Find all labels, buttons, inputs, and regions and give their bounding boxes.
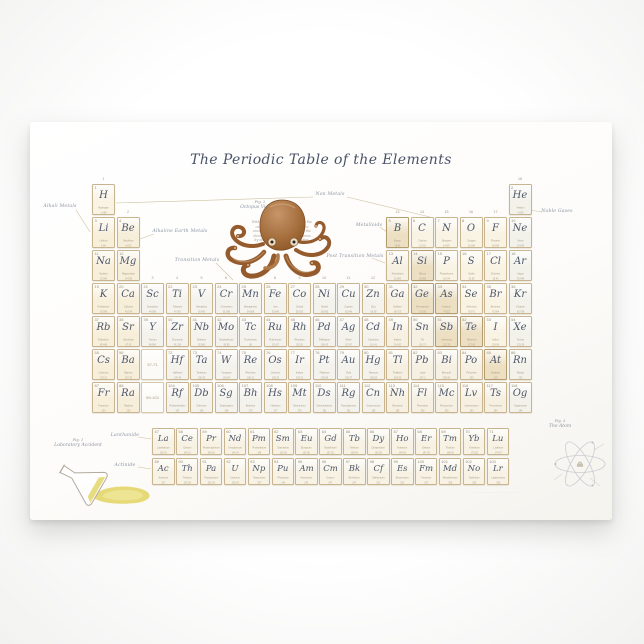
periodic-table-poster: The Periodic Table of the Elements 1HHyd… (30, 122, 612, 520)
element-cell-Pu: 94PuPlutonium244 (272, 458, 295, 485)
element-cell-Cs: 55CsCaesium132.91 (92, 349, 115, 380)
atomic-number: 79 (340, 351, 344, 355)
element-cell-Bk: 97BkBerkelium247 (343, 458, 366, 485)
element-symbol: Be (118, 223, 139, 235)
atomic-mass: 101.07 (266, 344, 283, 346)
element-symbol: Og (510, 388, 531, 400)
atomic-mass: 78.971 (462, 311, 479, 313)
element-symbol: V (191, 289, 212, 301)
atomic-number: 32 (413, 285, 417, 289)
atomic-mass: 266 (489, 481, 506, 483)
element-name: Germanium (413, 305, 432, 308)
element-symbol: Am (296, 463, 317, 475)
element-name: Gold (339, 371, 358, 374)
octopus-head (260, 200, 305, 250)
element-name: Mendelevium (441, 476, 460, 479)
atomic-mass: 69.723 (389, 311, 406, 313)
element-symbol: Cn (363, 388, 384, 400)
element-symbol: K (93, 289, 114, 301)
element-cell-Bi: 83BiBismuth208.98 (435, 349, 458, 380)
element-cell-Pb: 82PbLead207.2 (411, 349, 434, 380)
atomic-number: 112 (364, 384, 370, 388)
element-symbol: Np (249, 463, 270, 475)
atomic-mass: 289 (413, 410, 430, 412)
atomic-mass: 140.12 (179, 451, 196, 453)
element-cell-Rg: 111RgRoentgenium282 (337, 382, 360, 413)
atomic-mass: 39.948 (511, 278, 528, 280)
element-symbol: Pr (201, 433, 222, 445)
atomic-mass: 180.95 (193, 377, 210, 379)
element-cell-Hg: 80HgMercury200.59 (362, 349, 385, 380)
element-symbol: Ti (167, 289, 188, 301)
element-name: Iridium (290, 371, 309, 374)
element-name: Thallium (388, 371, 407, 374)
atomic-number: 20 (119, 285, 123, 289)
element-cell-Os: 76OsOsmium190.23 (264, 349, 287, 380)
atomic-mass: 258 (442, 481, 459, 483)
element-name: Cobalt (290, 305, 309, 308)
element-name: Cerium (178, 446, 197, 449)
atomic-mass: 98 (242, 344, 259, 346)
element-symbol: Zn (363, 289, 384, 301)
element-name: Platinum (315, 371, 334, 374)
atomic-mass: 40.078 (119, 311, 136, 313)
element-cell-Mo: 42MoMolybdenum95.95 (215, 316, 238, 347)
element-symbol: Fl (412, 388, 433, 400)
fig1-label: Fig. 1 Laboratory Accident (54, 438, 102, 448)
atomic-mass: 145 (250, 451, 267, 453)
element-symbol: Ru (265, 322, 286, 334)
atomic-number: 22 (168, 285, 172, 289)
atomic-mass: 112.41 (364, 344, 381, 346)
atomic-mass: 79.904 (487, 311, 504, 313)
atomic-mass: 252 (394, 481, 411, 483)
atomic-mass: 209 (462, 377, 479, 379)
atomic-mass: 58.933 (291, 311, 308, 313)
element-name: Francium (94, 404, 113, 407)
element-name: Nobelium (465, 476, 484, 479)
atomic-mass: 87.62 (119, 344, 136, 346)
element-symbol: Mn (240, 289, 261, 301)
element-cell-Lr: 103LrLawrencium266 (487, 458, 510, 485)
atomic-number: 46 (315, 318, 319, 322)
element-name: Ytterbium (465, 446, 484, 449)
annotation-non-metals: Non Metals (315, 192, 344, 197)
element-cell-Lu: 71LuLutetium174.97 (487, 428, 510, 455)
element-name: Tungsten (217, 371, 236, 374)
element-symbol: Cl (485, 256, 506, 268)
element-symbol: Sc (142, 289, 163, 301)
element-cell-Ni: 28NiNickel58.693 (313, 283, 336, 314)
element-name: Tantalum (192, 371, 211, 374)
element-symbol: Rg (338, 388, 359, 400)
element-name: Potassium (94, 305, 113, 308)
element-name: Moscovium (437, 404, 456, 407)
atomic-mass: 285 (364, 410, 381, 412)
atomic-number: 7 (438, 219, 440, 223)
element-symbol: As (436, 289, 457, 301)
atomic-mass: 132.91 (95, 377, 112, 379)
element-name: Darmstadtium (315, 404, 334, 407)
atomic-mass: 173.05 (465, 451, 482, 453)
atomic-mass: 208.98 (438, 377, 455, 379)
element-cell-Ar: 18ArArgon39.948 (509, 250, 532, 281)
element-cell-Sr: 38SrStrontium87.62 (117, 316, 140, 347)
element-symbol: Kr (510, 289, 531, 301)
atomic-number: 2 (511, 186, 513, 190)
atomic-mass: 167.26 (418, 451, 435, 453)
nucleus (577, 462, 583, 467)
element-cell-Nd: 60NdNeodymium144.24 (224, 428, 247, 455)
element-symbol: Au (338, 355, 359, 367)
element-symbol: Bh (240, 388, 261, 400)
atomic-mass: 55.845 (266, 311, 283, 313)
element-symbol: La (153, 433, 174, 445)
element-cell-Hs: 108HsHassium277 (264, 382, 287, 413)
element-symbol: At (485, 355, 506, 367)
atomic-mass: 58.693 (315, 311, 332, 313)
atomic-mass: 286 (389, 410, 406, 412)
element-symbol: Ra (118, 388, 139, 400)
atomic-mass: 4.003 (511, 212, 528, 214)
element-cell-K: 19KPotassium39.098 (92, 283, 115, 314)
element-cell-Cf: 98CfCalifornium251 (367, 458, 390, 485)
element-name: Rhodium (290, 338, 309, 341)
atomic-mass: 150.36 (274, 451, 291, 453)
atomic-number: 50 (413, 318, 417, 322)
element-symbol: Zr (167, 322, 188, 334)
element-cell-B: 5BBoron10.81 (386, 217, 409, 248)
element-name: Antimony (437, 338, 456, 341)
element-name: Strontium (119, 338, 138, 341)
element-cell-Pr: 59PrPraseodymium140.91 (200, 428, 223, 455)
atomic-number: 109 (291, 384, 298, 388)
element-symbol: Pu (273, 463, 294, 475)
element-name: Magnesium (119, 272, 138, 275)
element-name: Barium (119, 371, 138, 374)
atomic-number: 84 (462, 351, 466, 355)
element-symbol: Lr (488, 463, 509, 475)
atomic-mass: 50.942 (193, 311, 210, 313)
atomic-mass: 140.91 (203, 451, 220, 453)
element-cell-Sc: 21ScScandium44.956 (141, 283, 164, 314)
element-cell-Fr: 87FrFrancium223 (92, 382, 115, 413)
atomic-mass: 137.33 (119, 377, 136, 379)
atomic-mass: 269 (217, 410, 234, 412)
element-symbol: Ds (314, 388, 335, 400)
element-symbol: In (387, 322, 408, 334)
atomic-mass: 192.22 (291, 377, 308, 379)
element-cell-No: 102NoNobelium259 (463, 458, 486, 485)
atomic-number: 42 (217, 318, 221, 322)
group-number-17: 17 (484, 210, 507, 214)
element-symbol: Rf (167, 388, 188, 400)
element-symbol: Ni (314, 289, 335, 301)
element-symbol: Sn (412, 322, 433, 334)
element-symbol: Gd (320, 433, 341, 445)
fig1-caption: Laboratory Accident (54, 443, 102, 449)
element-name: Cadmium (364, 338, 383, 341)
atomic-mass: 107.87 (340, 344, 357, 346)
atomic-mass: 72.630 (413, 311, 430, 313)
element-name: Mercury (364, 371, 383, 374)
atomic-number: 72 (168, 351, 172, 355)
atomic-mass: 204.38 (389, 377, 406, 379)
element-symbol: Tl (387, 355, 408, 367)
element-cell-Xe: 54XeXenon131.29 (509, 316, 532, 347)
element-name: Tin (413, 338, 432, 341)
spilled-flask-illustration (48, 450, 158, 510)
element-cell-Ge: 32GeGermanium72.630 (411, 283, 434, 314)
placeholder-range: 57-71 (142, 362, 163, 367)
element-cell-Po: 84PoPolonium209 (460, 349, 483, 380)
element-name: Phosphorus (437, 272, 456, 275)
atomic-mass: 158.93 (346, 451, 363, 453)
atomic-mass: 251 (370, 481, 387, 483)
atomic-number: 41 (193, 318, 197, 322)
atomic-number: 76 (266, 351, 270, 355)
atomic-mass: 12.011 (413, 245, 430, 247)
atomic-mass: 293 (462, 410, 479, 412)
element-symbol: Hf (167, 355, 188, 367)
atomic-number: 77 (291, 351, 295, 355)
element-name: Argon (511, 272, 530, 275)
element-name: Lawrencium (488, 476, 507, 479)
element-cell-Am: 95AmAmericium243 (295, 458, 318, 485)
element-symbol: Pt (314, 355, 335, 367)
element-symbol: O (461, 223, 482, 235)
atomic-mass: 247 (322, 481, 339, 483)
element-cell-H: 1HHydrogen1.008 (92, 184, 115, 215)
atomic-number: 14 (413, 252, 417, 256)
element-cell-Te: 52TeTellurium127.60 (460, 316, 483, 347)
element-symbol: Pb (412, 355, 433, 367)
element-cell-At: 85AtAstatine210 (484, 349, 507, 380)
element-symbol: Ta (191, 355, 212, 367)
atomic-mass: 259 (465, 481, 482, 483)
atomic-mass: 51.996 (217, 311, 234, 313)
element-cell-Cm: 96CmCurium247 (319, 458, 342, 485)
element-symbol: Tc (240, 322, 261, 334)
element-symbol: Po (461, 355, 482, 367)
element-cell-Cn: 112CnCopernicium285 (362, 382, 385, 413)
element-cell-Sg: 106SgSeaborgium269 (215, 382, 238, 413)
element-cell-Br: 35BrBromine79.904 (484, 283, 507, 314)
element-cell-Zr: 40ZrZirconium91.224 (166, 316, 189, 347)
element-name: Scandium (143, 305, 162, 308)
element-cell-Tm: 69TmThulium168.93 (439, 428, 462, 455)
atomic-number: 10 (511, 219, 515, 223)
atomic-mass: 144.24 (226, 451, 243, 453)
atomic-mass: 200.59 (364, 377, 381, 379)
atomic-number: 73 (193, 351, 197, 355)
element-symbol: S (461, 256, 482, 268)
element-symbol: Na (93, 256, 114, 268)
atomic-mass: 47.867 (168, 311, 185, 313)
atomic-mass: 26.982 (389, 278, 406, 280)
atomic-number: 83 (438, 351, 442, 355)
atomic-mass: 54.938 (242, 311, 259, 313)
element-name: Yttrium (143, 338, 162, 341)
element-symbol: Fe (265, 289, 286, 301)
element-symbol: Mt (289, 388, 310, 400)
atomic-mass: 294 (487, 410, 504, 412)
atomic-mass: 281 (315, 410, 332, 412)
element-name: Boron (388, 239, 407, 242)
atomic-mass: 222 (511, 377, 528, 379)
element-cell-Fl: 114FlFlerovium289 (411, 382, 434, 413)
atomic-number: 30 (364, 285, 368, 289)
atomic-mass: 183.84 (217, 377, 234, 379)
element-cell-Mg: 12MgMagnesium24.305 (117, 250, 140, 281)
element-cell-Sm: 62SmSamarium150.36 (272, 428, 295, 455)
group-number-16: 16 (460, 210, 483, 214)
atomic-number: 117 (487, 384, 493, 388)
element-cell-Al: 13AlAluminium26.982 (386, 250, 409, 281)
group-number-1: 1 (92, 177, 115, 181)
element-cell-Gd: 64GdGadolinium157.25 (319, 428, 342, 455)
element-name: Copper (339, 305, 358, 308)
atomic-number: 111 (340, 384, 346, 388)
element-cell-Be: 4BeBeryllium9.012 (117, 217, 140, 248)
element-cell-Mc: 115McMoscovium290 (435, 382, 458, 413)
element-symbol: Fr (93, 388, 114, 400)
atomic-number: 8 (462, 219, 464, 223)
element-name: Carbon (413, 239, 432, 242)
atomic-mass: 106.42 (315, 344, 332, 346)
element-cell-Sb: 51SbAntimony121.76 (435, 316, 458, 347)
octopus-illustration (216, 198, 346, 286)
element-name: Xenon (511, 338, 530, 341)
atomic-mass: 91.224 (168, 344, 185, 346)
element-symbol: Nh (387, 388, 408, 400)
element-symbol: Es (392, 463, 413, 475)
element-cell-P: 15PPhosphorus30.974 (435, 250, 458, 281)
element-cell-Re: 75ReRhenium186.21 (239, 349, 262, 380)
element-symbol: Rn (510, 355, 531, 367)
element-cell-Ds: 110DsDarmstadtium281 (313, 382, 336, 413)
element-cell-Sn: 50SnTin118.71 (411, 316, 434, 347)
element-name: Bromine (486, 305, 505, 308)
atomic-mass: 118.71 (413, 344, 430, 346)
atomic-mass: 232.04 (179, 481, 196, 483)
element-name: Neptunium (249, 476, 268, 479)
atomic-number: 11 (95, 252, 99, 256)
element-cell-U: 92UUranium238.03 (224, 458, 247, 485)
element-name: Berkelium (345, 476, 364, 479)
element-symbol: Y (142, 322, 163, 334)
element-name: Chromium (217, 305, 236, 308)
element-name: Lanthanum (154, 446, 173, 449)
atomic-number: 31 (389, 285, 393, 289)
element-name: Praseodymium (202, 446, 221, 449)
atomic-number: 88 (119, 384, 123, 388)
element-symbol: B (387, 223, 408, 235)
atomic-number: 51 (438, 318, 442, 322)
atomic-number: 49 (389, 318, 393, 322)
element-symbol: Bk (344, 463, 365, 475)
element-cell-Tc: 43TcTechnetium98 (239, 316, 262, 347)
atomic-number: 23 (193, 285, 197, 289)
element-cell-Au: 79AuGold196.97 (337, 349, 360, 380)
atomic-number: 43 (242, 318, 246, 322)
element-symbol: F (485, 223, 506, 235)
element-cell-Li: 3LiLithium6.94 (92, 217, 115, 248)
element-cell-O: 8OOxygen15.999 (460, 217, 483, 248)
element-name: Iodine (486, 338, 505, 341)
atomic-number: 13 (389, 252, 393, 256)
element-name: Europium (297, 446, 316, 449)
atomic-mass: 121.76 (438, 344, 455, 346)
element-name: Indium (388, 338, 407, 341)
element-cell-Co: 27CoCobalt58.933 (288, 283, 311, 314)
element-name: Curium (321, 476, 340, 479)
atomic-mass: 44.956 (144, 311, 161, 313)
element-cell-Ce: 58CeCerium140.12 (176, 428, 199, 455)
element-cell-Tl: 81TlThallium204.38 (386, 349, 409, 380)
element-cell-Md: 101MdMendelevium258 (439, 458, 462, 485)
atomic-number: 85 (487, 351, 491, 355)
element-cell-Db: 105DbDubnium268 (190, 382, 213, 413)
atomic-mass: 151.96 (298, 451, 315, 453)
element-symbol: Ne (510, 223, 531, 235)
atomic-number: 104 (168, 384, 175, 388)
atomic-number: 82 (413, 351, 417, 355)
atomic-mass: 186.21 (242, 377, 259, 379)
element-symbol: Mg (118, 256, 139, 268)
element-name: Beryllium (119, 239, 138, 242)
element-name: Hydrogen (94, 206, 113, 209)
atomic-mass: 114.82 (389, 344, 406, 346)
atomic-mass: 15.999 (462, 245, 479, 247)
atomic-number: 16 (462, 252, 466, 256)
atomic-number: 52 (462, 318, 466, 322)
element-symbol: Cr (216, 289, 237, 301)
element-name: Dubnium (192, 404, 211, 407)
atomic-mass: 20.180 (511, 245, 528, 247)
atomic-mass: 24.305 (119, 278, 136, 280)
atomic-mass: 267 (168, 410, 185, 412)
element-symbol: Hs (265, 388, 286, 400)
atomic-mass: 277 (266, 410, 283, 412)
element-name: Neon (511, 239, 530, 242)
atomic-mass: 190.23 (266, 377, 283, 379)
element-symbol: Fm (416, 463, 437, 475)
atomic-number: 17 (487, 252, 491, 256)
atomic-number: 15 (438, 252, 442, 256)
element-name: Nickel (315, 305, 334, 308)
element-cell-Yb: 70YbYtterbium173.05 (463, 428, 486, 455)
element-cell-Er: 68ErErbium167.26 (415, 428, 438, 455)
atomic-mass: 18.998 (487, 245, 504, 247)
element-symbol: Te (461, 322, 482, 334)
element-cell-F: 9FFluorine18.998 (484, 217, 507, 248)
atomic-number: 56 (119, 351, 123, 355)
placeholder-cell-57-71: 57-71 (141, 349, 164, 380)
atomic-mass: 6.94 (95, 245, 112, 247)
atomic-number: 118 (511, 384, 517, 388)
element-name: Silicon (413, 272, 432, 275)
element-cell-Nh: 113NhNihonium286 (386, 382, 409, 413)
element-name: Rubidium (94, 338, 113, 341)
element-name: Terbium (345, 446, 364, 449)
element-name: Flerovium (413, 404, 432, 407)
element-symbol: Sm (273, 433, 294, 445)
atomic-number: 86 (511, 351, 515, 355)
element-symbol: C (412, 223, 433, 235)
group-number-5: 5 (190, 276, 213, 280)
element-name: Plutonium (273, 476, 292, 479)
